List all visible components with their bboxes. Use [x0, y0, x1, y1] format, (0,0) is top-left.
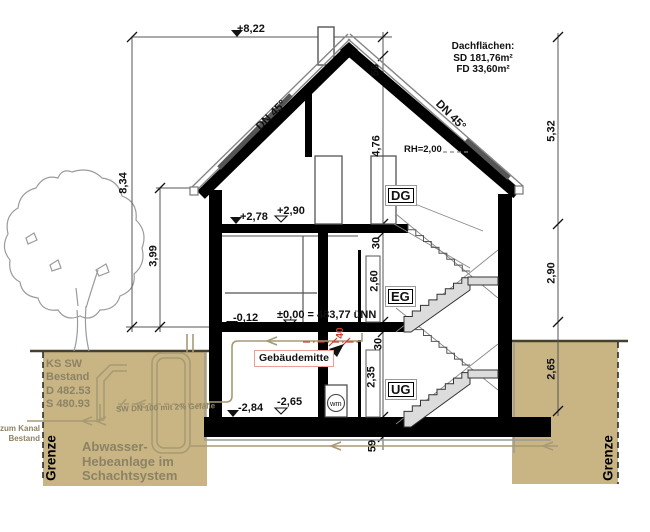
washing-machine-label: wm: [330, 400, 342, 408]
dim-ug-height: 2,35: [367, 366, 378, 387]
dim-right-eg: 2,90: [547, 262, 558, 283]
dim-right-ug: 2,65: [547, 358, 558, 379]
eg-raw-level: ±0,00 = 483,77 üNN: [277, 310, 376, 321]
lifting-station-line3: Schachtsystem: [82, 469, 177, 484]
boundary-label-left: Grenze: [44, 435, 58, 481]
to-canal-line1: zum Kanal: [0, 424, 40, 434]
ug-finish-level: -2,84: [238, 403, 263, 414]
storey-label-ground: EG: [388, 289, 413, 304]
to-canal-note: zum Kanal Bestand: [0, 424, 40, 443]
roof-area-note: Dachflächen: SD 181,76m² FD 33,60m²: [436, 41, 530, 76]
headroom-label: RH=2,00: [404, 145, 442, 155]
shaft-note-line4: S 480.93: [46, 398, 91, 411]
dim-left-eaves: 3,99: [149, 245, 160, 266]
section-drawing: +8,22 Dachflächen: SD 181,76m² FD 33,60m…: [0, 0, 650, 532]
lifting-station-note: Abwasser- Hebeanlage im Schachtsystem: [82, 440, 177, 484]
dg-finish-level: +2,78: [240, 212, 268, 223]
dg-raw-level: +2,90: [277, 206, 305, 217]
dim-ridge-offset: 56: [371, 64, 382, 76]
eg-finish-level: -0,12: [233, 313, 258, 324]
storey-label-attic: DG: [388, 188, 414, 203]
dim-right-roof: 5,32: [547, 120, 558, 141]
to-canal-line2: Bestand: [0, 434, 40, 444]
ridge-level-label: +8,22: [237, 24, 265, 35]
roof-area-title: Dachflächen:: [436, 41, 530, 53]
boundary-label-right: Grenze: [601, 435, 615, 481]
dim-slab-dg: 30: [372, 237, 383, 249]
lifting-station-line2: Hebeanlage im: [82, 455, 177, 470]
dim-attic-height: 4,76: [372, 135, 383, 156]
dim-eg-height: 2,60: [370, 270, 381, 291]
dim-left-total: 8,34: [119, 172, 130, 193]
existing-shaft-note: KS SW Bestand D 482.53 S 480.93: [46, 358, 91, 412]
building-center-callout: Gebäudemitte: [254, 350, 334, 367]
dim-slab-eg: 30: [374, 338, 385, 350]
roof-area-fd: FD 33,60m²: [436, 64, 530, 76]
chimney: [318, 27, 334, 65]
shaft-note-line1: KS SW: [46, 358, 91, 371]
shaft-note-line2: Bestand: [46, 371, 91, 384]
storey-label-basement: UG: [388, 382, 414, 397]
shaft-note-line3: D 482.53: [46, 385, 91, 398]
ug-raw-level: -2,65: [277, 397, 302, 408]
lifting-station-line1: Abwasser-: [82, 440, 177, 455]
roof-area-sd: SD 181,76m²: [436, 53, 530, 65]
dim-base-slab: 59: [368, 440, 379, 452]
tree: [4, 170, 144, 351]
dim-center-offset: 40: [336, 327, 346, 338]
